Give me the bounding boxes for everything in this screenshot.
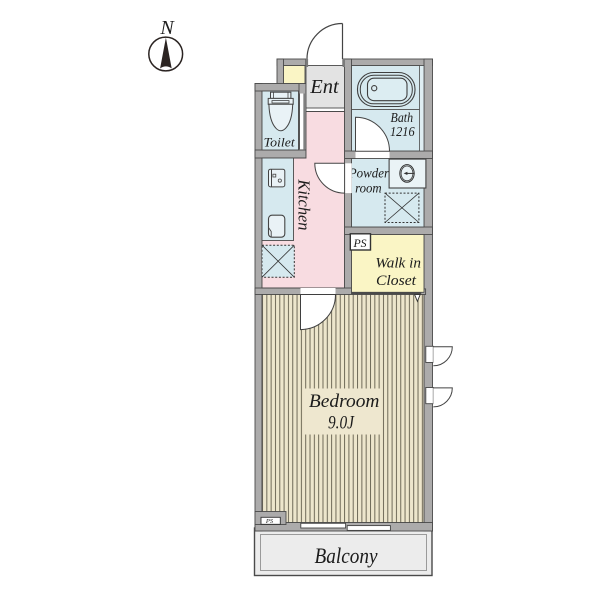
svg-text:1216: 1216 — [390, 124, 415, 139]
svg-text:PS: PS — [352, 236, 366, 250]
svg-text:Bath: Bath — [391, 110, 414, 125]
svg-text:Balcony: Balcony — [315, 543, 378, 568]
svg-text:N: N — [159, 17, 175, 39]
svg-text:Powder: Powder — [348, 167, 390, 182]
svg-text:Bedroom: Bedroom — [309, 391, 380, 412]
svg-text:Closet: Closet — [376, 273, 417, 289]
svg-text:9.0J: 9.0J — [328, 413, 355, 434]
svg-text:Walk in: Walk in — [375, 256, 421, 272]
svg-text:Kitchen: Kitchen — [294, 179, 313, 231]
svg-text:PS: PS — [265, 518, 274, 525]
svg-text:Ent: Ent — [309, 77, 339, 98]
svg-text:Toilet: Toilet — [264, 136, 296, 150]
svg-text:room: room — [355, 181, 382, 196]
